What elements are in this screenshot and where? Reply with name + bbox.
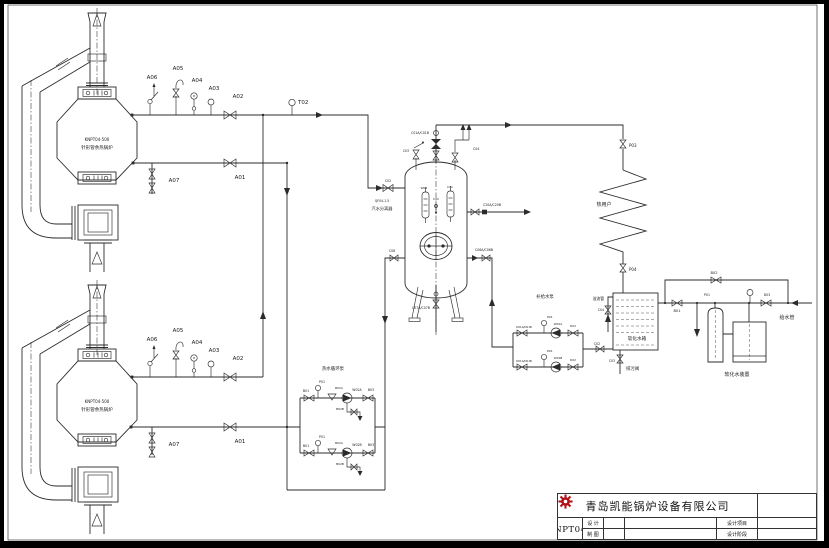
separator-name: 汽水分离器 [372, 205, 394, 212]
softener-unit [708, 308, 766, 362]
blowdown-label: 排污阀 [626, 365, 639, 372]
tag-p01-feed: P01 [704, 293, 710, 297]
flue-duct-2 [22, 310, 90, 502]
p03-valve [620, 140, 626, 148]
softener-label: 软化水装置 [724, 371, 749, 378]
tag-b02b-c1: B02B [336, 407, 344, 411]
design-label: 设 计 [583, 518, 604, 529]
boiler2-name: 针形管余热锅炉 [81, 406, 113, 413]
boiler-1 [22, 8, 137, 272]
tag-a06-1: A06 [147, 75, 158, 81]
drawing-sheet: KNPT04-500针形管余热锅炉A06A05A04A03A02A01A07T0… [4, 4, 824, 541]
tag-c04-tank: C04 [598, 308, 604, 312]
design-date [625, 518, 717, 529]
draft-label: 制 图 [583, 529, 604, 540]
tag-a05-1: A05 [173, 66, 184, 72]
tag-d02-mk1: D02 [570, 324, 576, 328]
tag-b01-c1: B01 [303, 389, 309, 393]
pipe-junctions [130, 114, 790, 429]
feed-pressure-gauge [747, 290, 753, 296]
tag-b03-c1: B03 [368, 388, 374, 392]
title-block-company-row: 青岛凯能锅炉设备有限公司 [558, 494, 816, 518]
tag-b02-feed: B02 [710, 271, 717, 275]
tag-w01: W01 [421, 186, 428, 190]
tag-p01-mk2: P01 [547, 349, 553, 353]
chimney-1 [86, 8, 108, 95]
tag-d03-feed: D03 [764, 293, 771, 297]
p04-valve [620, 264, 626, 272]
tag-w02a: W02A [352, 388, 362, 392]
flue-duct-1 [22, 48, 90, 240]
boiler-valves-instruments [148, 80, 295, 457]
drawing-frame [8, 5, 817, 540]
piping [130, 106, 812, 490]
tag-c03-tank: C03 [609, 359, 615, 363]
tag-a07-1: A07 [169, 178, 180, 184]
tag-p03: P03 [629, 143, 637, 148]
boiler1-name: 针形管余热锅炉 [81, 144, 113, 151]
company-logo-gear-icon [558, 494, 573, 509]
tag-b02a-c1: B02A [335, 386, 343, 390]
tag-b02a-c2: B02A [335, 441, 343, 445]
project-label: 设计项目 [717, 518, 758, 529]
tag-c20: C20A/C20B [483, 203, 501, 207]
tag-p04: P04 [629, 267, 637, 272]
tag-a07-2: A07 [169, 442, 180, 448]
stage-value [758, 529, 816, 540]
manhole [420, 233, 452, 260]
tag-b02b-c2: B02B [336, 462, 344, 466]
tag-p01-c2: P01 [319, 435, 325, 439]
tag-a01-1: A01 [235, 175, 246, 181]
project-value [758, 518, 816, 529]
tag-d02-mk2: D02 [570, 358, 576, 362]
title-block-empty-cell [758, 494, 816, 517]
c20-arrow [524, 209, 531, 215]
screenshot-page: KNPT04-500针形管余热锅炉A06A05A04A03A02A01A07T0… [0, 0, 829, 548]
separator-vessel [383, 131, 490, 336]
tag-a05-2: A05 [173, 328, 184, 334]
tag-w02b: W02B [352, 443, 361, 447]
tag-d01-mk1: D01A/D01B [516, 325, 532, 329]
boiler1-model: KNPT04-500 [85, 137, 110, 142]
drawing-title: 2台KNPT04-500 [558, 518, 583, 540]
tag-a02-2: A02 [233, 356, 244, 362]
tag-w01b: W01B [554, 356, 563, 360]
feed-pipe-label: 给水管 [779, 314, 794, 321]
tag-b01-c2: B01 [303, 444, 309, 448]
tag-d01-mk2: D01A/D01B [516, 359, 532, 363]
company-cell: 青岛凯能锅炉设备有限公司 [558, 494, 758, 517]
tag-a04-2: A04 [192, 340, 203, 346]
tag-b01-feed: B01 [673, 309, 680, 313]
draft-date [625, 529, 717, 540]
makeup-pumps-label: 补给水泵 [536, 293, 554, 300]
circ-pumps-label: 热水循环泵 [322, 365, 345, 372]
tag-c02: C02 [385, 179, 391, 183]
company-name: 青岛凯能锅炉设备有限公司 [586, 498, 730, 514]
tag-c06: C06A/C06B [475, 248, 493, 252]
tag-p01-c1: P01 [319, 380, 325, 384]
title-block-grid: 设 计 2台KNPT04-500 设计项目 制 图 设计阶段 [558, 518, 816, 540]
tag-w01a: W01A [554, 322, 563, 326]
title-block: 青岛凯能锅炉设备有限公司 设 计 2台KNPT04-500 设计项目 制 图 设… [557, 493, 817, 540]
pid-diagram: KNPT04-500针形管余热锅炉A06A05A04A03A02A01A07T0… [4, 4, 824, 541]
tag-a01-2: A01 [235, 439, 246, 445]
tag-t02: T02 [297, 100, 308, 106]
tag-a03-2: A03 [209, 348, 220, 354]
tag-c01: C01A/C01B [411, 131, 429, 135]
draft-value [604, 529, 625, 540]
tag-a06-2: A06 [147, 337, 158, 343]
chimney-2 [86, 280, 108, 357]
tag-a03-1: A03 [209, 86, 220, 92]
tag-c22: C22 [433, 197, 439, 201]
tag-c03: C03 [403, 149, 409, 153]
heat-user-label: 热用户 [596, 201, 611, 208]
tag-b03-c2: B03 [368, 443, 374, 447]
tag-c08: C08 [389, 249, 395, 253]
tag-a02-1: A02 [233, 94, 244, 100]
tag-c02-tank: C02 [594, 342, 600, 346]
tag-a04-1: A04 [192, 78, 203, 84]
design-value [604, 518, 625, 529]
heat-user-coil [600, 170, 646, 293]
lever-safety-valve [413, 142, 424, 160]
tag-c07: C07A/C07B [412, 306, 430, 310]
fan-box-2 [78, 467, 118, 534]
boiler-2 [22, 280, 137, 534]
overflow-label: 溢流管 [593, 296, 605, 301]
soft-tank-label: 软化水箱 [628, 335, 647, 342]
stage-label: 设计阶段 [717, 529, 758, 540]
separator-model: QF04-1.5 [375, 199, 390, 203]
fan-box-1 [78, 205, 118, 272]
tag-p01-mk1: P01 [547, 315, 553, 319]
tag-c04: C04 [473, 147, 479, 151]
labels-layer: KNPT04-500针形管余热锅炉A06A05A04A03A02A01A07T0… [81, 66, 794, 466]
tag-c21: C21 [447, 185, 453, 189]
boiler2-model: KNPT04-500 [85, 399, 110, 404]
